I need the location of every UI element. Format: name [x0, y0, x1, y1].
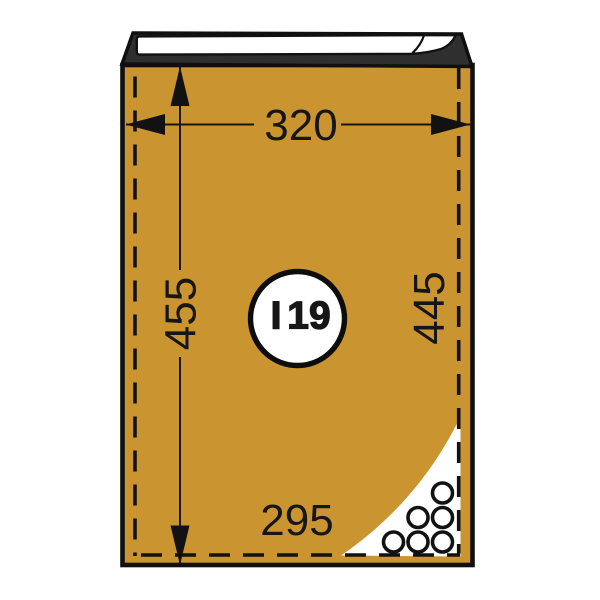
svg-text:I: I — [271, 295, 282, 338]
svg-text:455: 455 — [157, 277, 206, 350]
svg-text:320: 320 — [264, 101, 337, 150]
svg-text:445: 445 — [405, 271, 454, 344]
svg-text:19: 19 — [287, 295, 330, 338]
svg-text:295: 295 — [260, 496, 333, 545]
